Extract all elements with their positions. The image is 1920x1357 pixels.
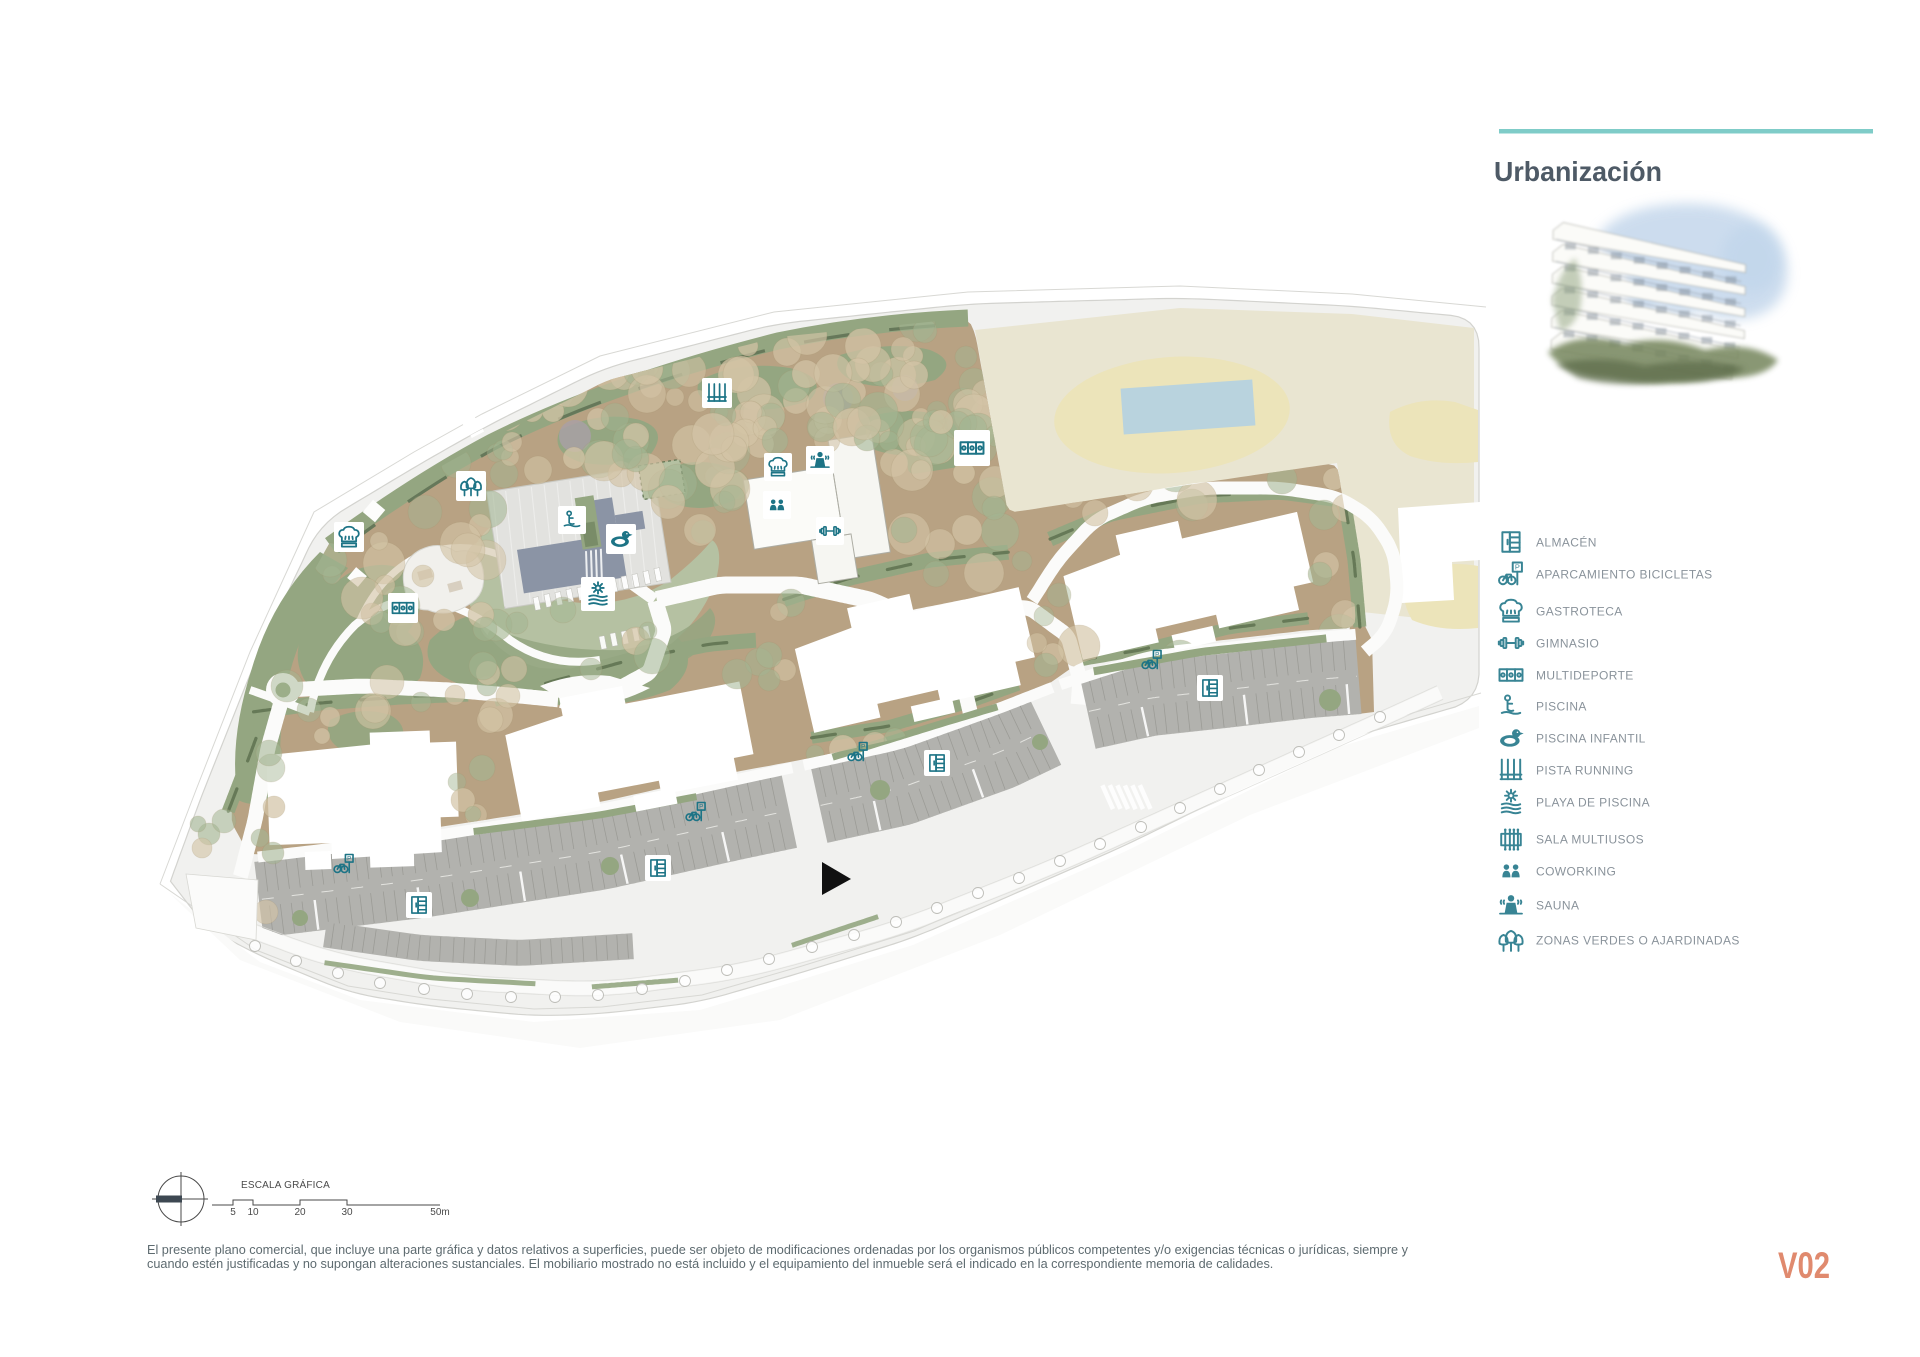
svg-text:MULTIDEPORTE: MULTIDEPORTE <box>1536 669 1634 683</box>
svg-text:Urbanización: Urbanización <box>1494 156 1662 187</box>
svg-text:PLAYA DE PISCINA: PLAYA DE PISCINA <box>1536 796 1650 810</box>
svg-text:PISTA RUNNING: PISTA RUNNING <box>1536 764 1634 778</box>
svg-text:30: 30 <box>341 1207 353 1218</box>
svg-text:20: 20 <box>294 1207 306 1218</box>
svg-text:ALMACÉN: ALMACÉN <box>1536 535 1597 550</box>
svg-text:5: 5 <box>230 1207 236 1218</box>
svg-text:ESCALA GRÁFICA: ESCALA GRÁFICA <box>241 1178 330 1191</box>
svg-text:cuando estén justificadas y no: cuando estén justificadas y no supongan … <box>147 1257 1273 1271</box>
svg-text:10: 10 <box>247 1207 259 1218</box>
svg-text:APARCAMIENTO BICICLETAS: APARCAMIENTO BICICLETAS <box>1536 568 1713 582</box>
svg-text:50m: 50m <box>430 1207 449 1218</box>
svg-text:GASTROTECA: GASTROTECA <box>1536 605 1623 619</box>
svg-text:ZONAS VERDES O AJARDINADAS: ZONAS VERDES O AJARDINADAS <box>1536 934 1740 948</box>
svg-text:SALA MULTIUSOS: SALA MULTIUSOS <box>1536 833 1644 847</box>
svg-text:GIMNASIO: GIMNASIO <box>1536 637 1599 651</box>
svg-text:P: P <box>1515 563 1520 572</box>
svg-text:PISCINA: PISCINA <box>1536 700 1587 714</box>
svg-text:COWORKING: COWORKING <box>1536 865 1616 879</box>
svg-text:V02: V02 <box>1778 1245 1830 1286</box>
svg-text:PISCINA INFANTIL: PISCINA INFANTIL <box>1536 732 1646 746</box>
svg-text:El presente plano comercial, q: El presente plano comercial, que incluye… <box>147 1243 1409 1257</box>
svg-text:SAUNA: SAUNA <box>1536 899 1579 913</box>
